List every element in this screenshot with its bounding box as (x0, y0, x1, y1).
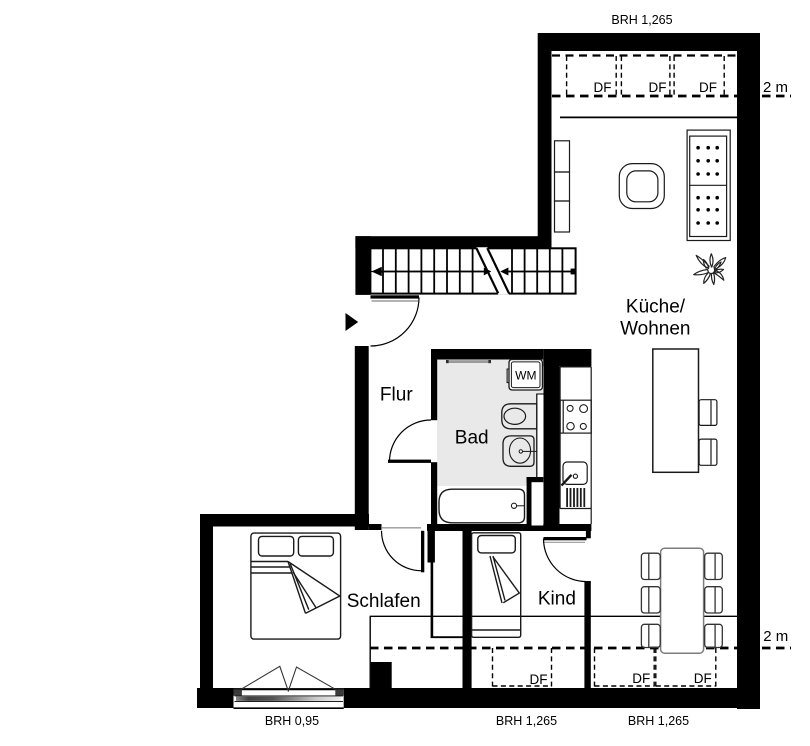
svg-text:Wohnen: Wohnen (620, 319, 690, 340)
svg-text:2 m: 2 m (763, 79, 788, 96)
svg-text:WM: WM (515, 369, 536, 383)
svg-text:BRH 1,265: BRH 1,265 (628, 714, 689, 728)
svg-text:Küche/: Küche/ (626, 297, 686, 318)
svg-text:DF: DF (530, 672, 548, 687)
svg-text:Bad: Bad (455, 427, 489, 448)
svg-text:BRH 0,95: BRH 0,95 (265, 714, 319, 728)
svg-text:Kind: Kind (538, 589, 576, 610)
svg-text:DF: DF (594, 80, 612, 95)
svg-text:Schlafen: Schlafen (347, 591, 421, 612)
svg-text:DF: DF (649, 80, 667, 95)
svg-text:DF: DF (694, 671, 712, 686)
svg-text:DF: DF (699, 80, 717, 95)
svg-text:BRH 1,265: BRH 1,265 (611, 13, 672, 27)
svg-text:Flur: Flur (380, 385, 413, 406)
svg-text:2 m: 2 m (763, 628, 788, 645)
svg-text:DF: DF (632, 671, 650, 686)
svg-text:BRH 1,265: BRH 1,265 (496, 714, 557, 728)
